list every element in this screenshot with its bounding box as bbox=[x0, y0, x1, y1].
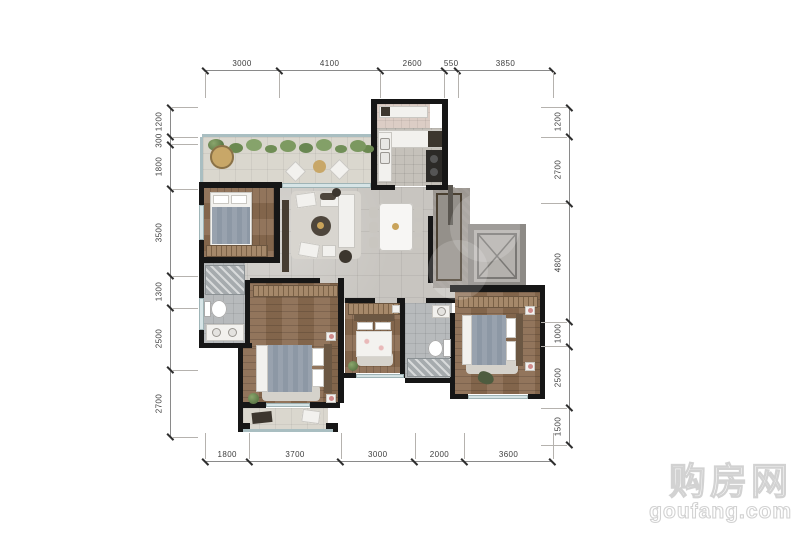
dim-extension bbox=[541, 346, 567, 347]
floorplan-canvas: 3000410026005503850180037003000200036001… bbox=[0, 0, 800, 533]
dim-label: 3600 bbox=[492, 450, 526, 459]
watermark-name: 购房网 bbox=[649, 463, 792, 501]
dim-label: 550 bbox=[434, 59, 468, 68]
dim-line-bottom bbox=[205, 461, 553, 462]
dim-label: 2700 bbox=[554, 153, 563, 187]
dim-label: 4100 bbox=[313, 59, 347, 68]
dim-extension bbox=[172, 107, 198, 108]
watermark-domain: goufang.com bbox=[649, 501, 792, 523]
dim-extension bbox=[341, 433, 342, 459]
dim-extension bbox=[172, 308, 198, 309]
dim-extension bbox=[279, 72, 280, 98]
dim-label: 1800 bbox=[155, 150, 164, 184]
dim-extension bbox=[172, 437, 198, 438]
dim-label: 2000 bbox=[422, 450, 456, 459]
dim-extension bbox=[541, 203, 567, 204]
dim-extension bbox=[541, 445, 567, 446]
dim-label: 4800 bbox=[554, 245, 563, 279]
dim-extension bbox=[172, 276, 198, 277]
dim-label: 2600 bbox=[395, 59, 429, 68]
watermark-logo: 购房网 goufang.com bbox=[649, 463, 792, 523]
dim-line-right bbox=[569, 107, 570, 445]
dim-label: 2500 bbox=[155, 322, 164, 356]
dim-extension bbox=[458, 72, 459, 98]
dimension-annotations: 3000410026005503850180037003000200036001… bbox=[0, 0, 800, 533]
dim-extension bbox=[380, 72, 381, 98]
dim-label: 3500 bbox=[155, 215, 164, 249]
dim-extension bbox=[553, 72, 554, 98]
dim-label: 3700 bbox=[278, 450, 312, 459]
dim-label: 1300 bbox=[155, 275, 164, 309]
dim-label: 3000 bbox=[225, 59, 259, 68]
dim-extension bbox=[172, 370, 198, 371]
dim-label: 1800 bbox=[210, 450, 244, 459]
dim-extension bbox=[205, 433, 206, 459]
dim-extension bbox=[464, 433, 465, 459]
dim-extension bbox=[172, 144, 198, 145]
dim-extension bbox=[172, 189, 198, 190]
dim-label: 1500 bbox=[554, 409, 563, 443]
dim-extension bbox=[444, 72, 445, 98]
dim-label: 1200 bbox=[554, 105, 563, 139]
dim-line-left bbox=[170, 107, 171, 437]
dim-label: 2700 bbox=[155, 386, 164, 420]
dim-extension bbox=[249, 433, 250, 459]
dim-extension bbox=[541, 137, 567, 138]
dim-extension bbox=[415, 433, 416, 459]
dim-extension bbox=[172, 137, 198, 138]
dim-label: 3850 bbox=[488, 59, 522, 68]
dim-label: 3000 bbox=[361, 450, 395, 459]
dim-extension bbox=[205, 72, 206, 98]
dim-label: 2500 bbox=[554, 360, 563, 394]
